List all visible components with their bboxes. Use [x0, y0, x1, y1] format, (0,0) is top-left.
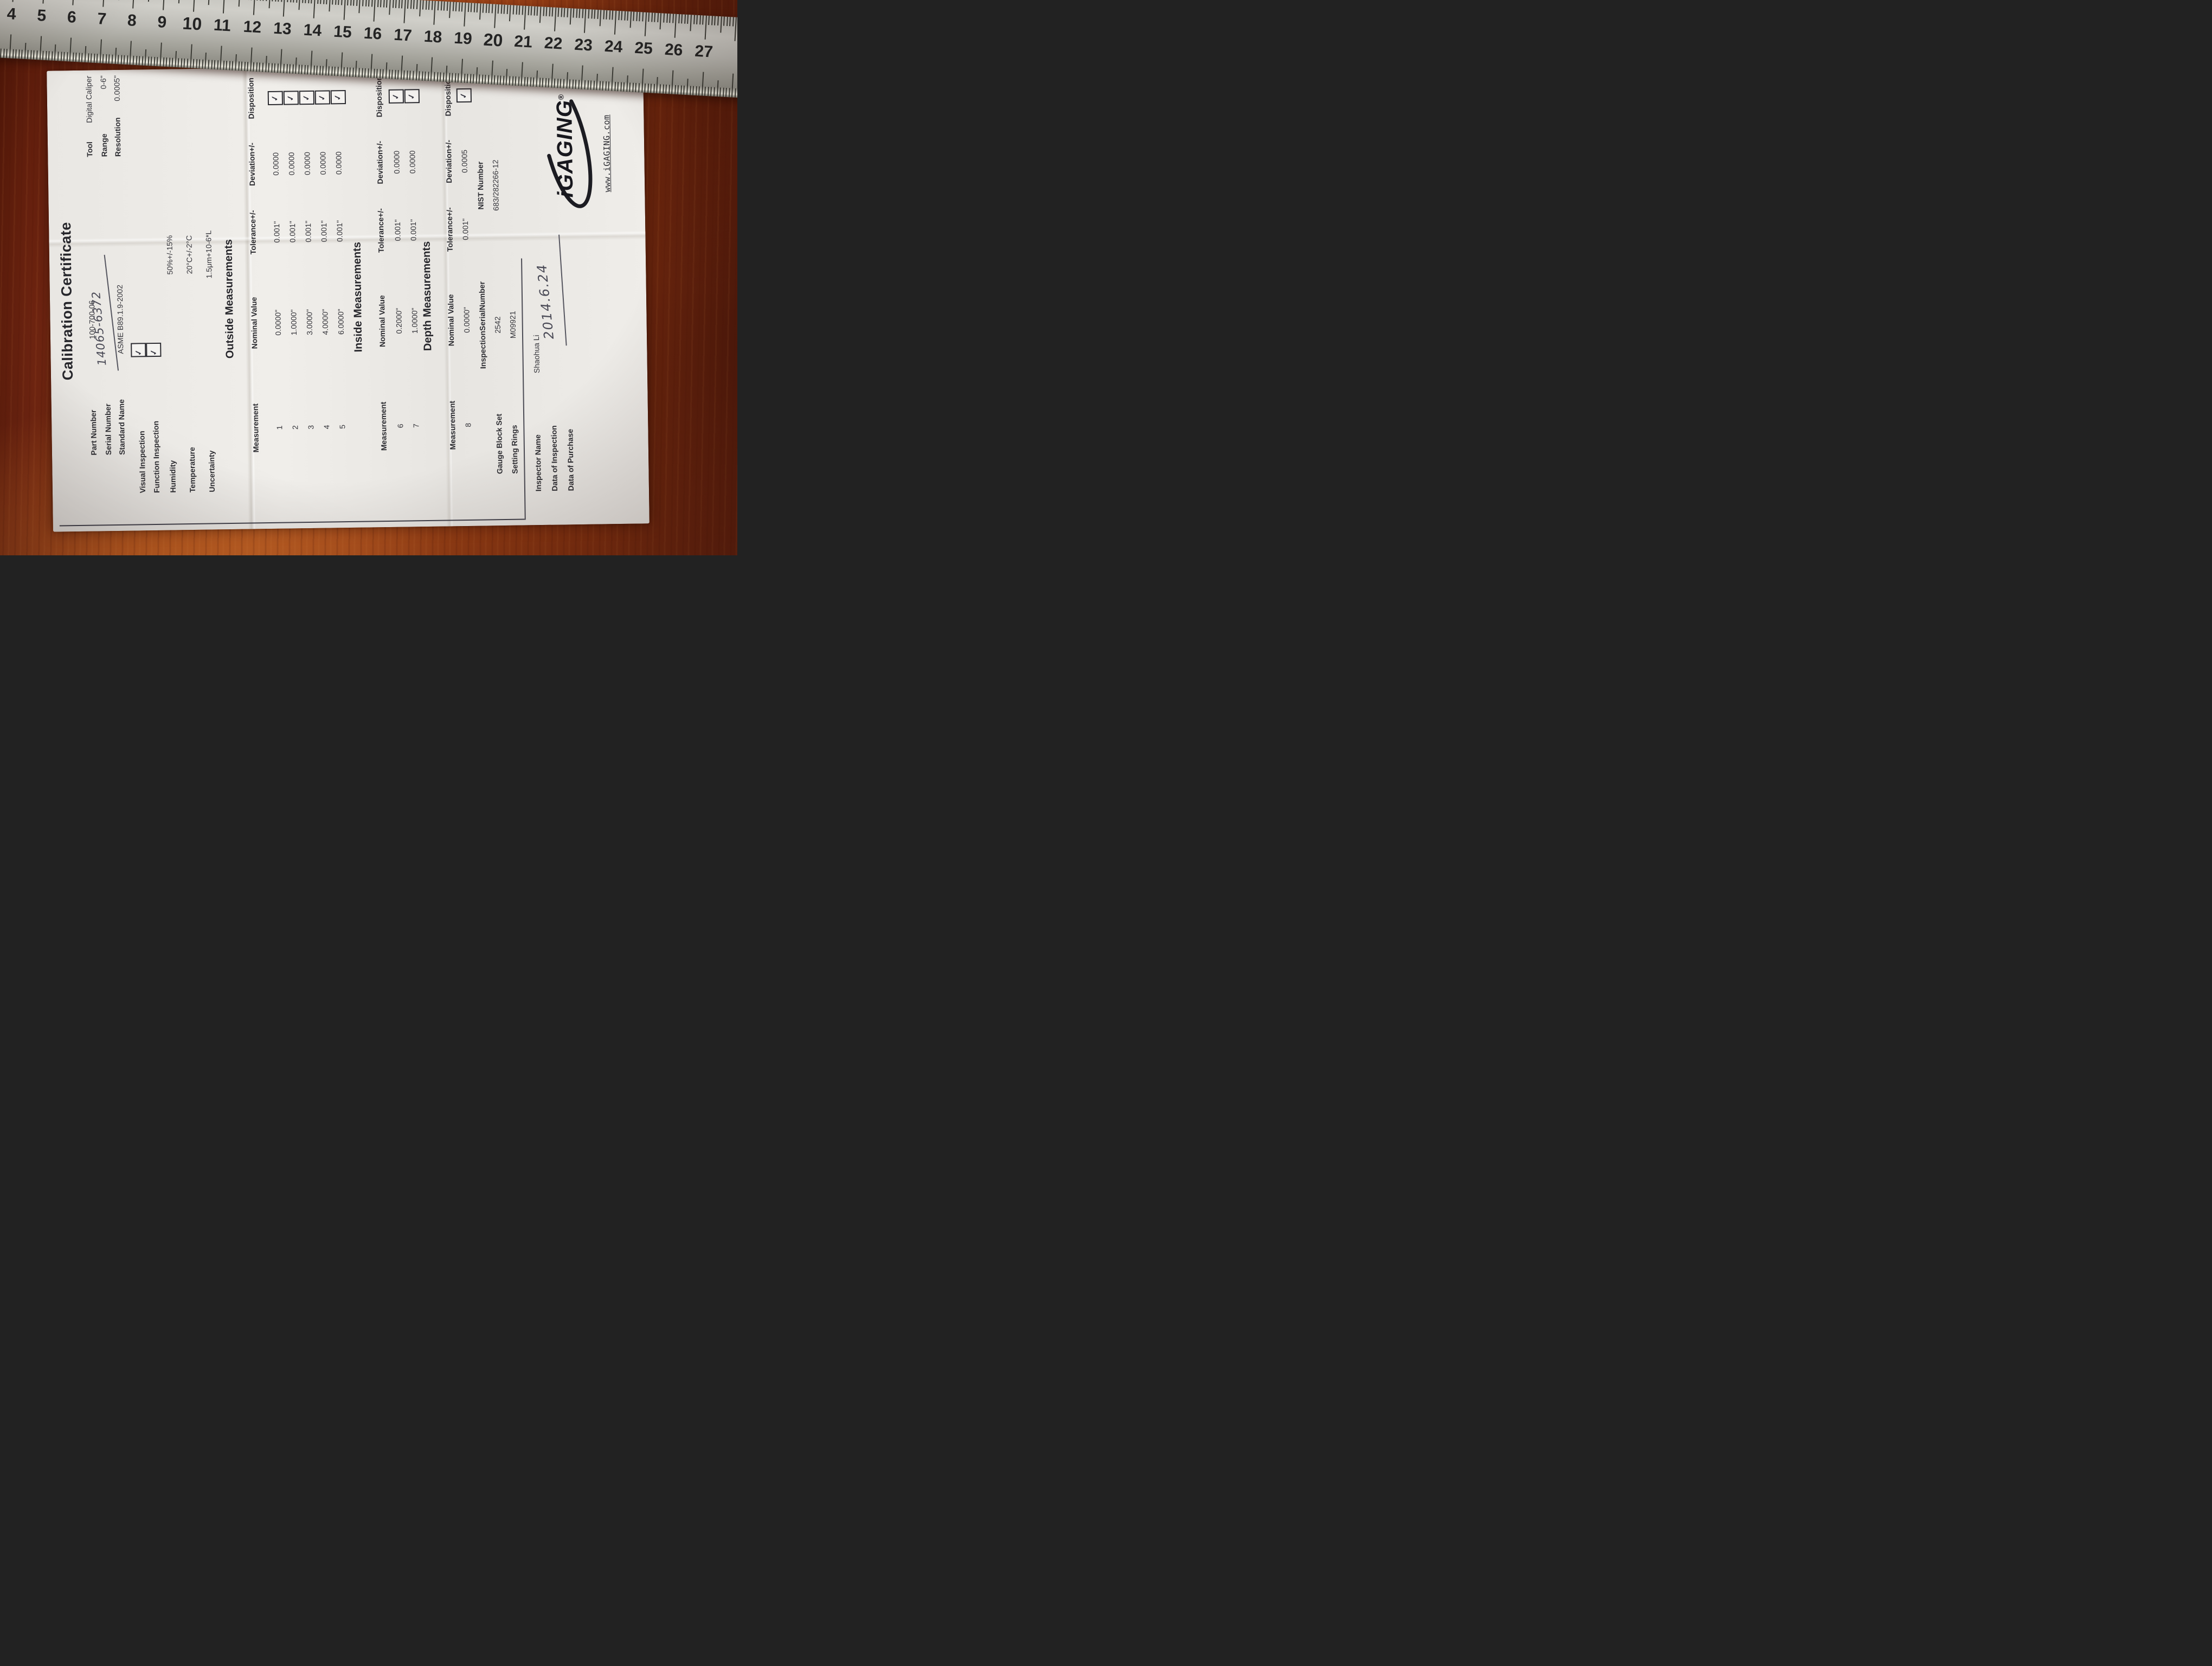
ruler-tick — [599, 81, 601, 90]
disposition-checkbox: ✓ — [404, 89, 420, 103]
ruler-tick — [569, 79, 571, 88]
ruler-tick — [488, 75, 490, 84]
registered-trademark-icon: ® — [556, 94, 565, 100]
ruler-tick — [488, 4, 490, 13]
ruler-tick — [503, 76, 504, 85]
ruler-tick — [543, 7, 544, 16]
ruler-tick — [346, 67, 348, 76]
ruler-tick — [704, 16, 706, 40]
part-number-label: Part Number — [89, 409, 98, 455]
ruler-tick — [263, 0, 265, 1]
ruler-tick — [710, 87, 712, 96]
ruler-tick — [419, 71, 420, 80]
ruler-tick — [719, 87, 721, 97]
ruler-tick — [112, 55, 113, 64]
ruler-tick — [660, 13, 662, 29]
ruler-tick — [335, 0, 337, 5]
ruler-tick — [653, 84, 655, 93]
ruler-tick — [79, 53, 80, 62]
ruler-number: 11 — [213, 16, 232, 36]
deviation-cell: 0.0000 — [270, 131, 285, 197]
ruler-tick — [473, 74, 474, 84]
ruler-tick — [293, 0, 294, 3]
ruler-tick — [521, 62, 523, 86]
ruler-tick — [686, 79, 689, 95]
ruler-tick — [403, 71, 405, 80]
ruler-tick — [438, 1, 439, 10]
ruler-tick — [244, 62, 246, 71]
ruler-tick — [614, 82, 616, 91]
check-icon: ✓ — [132, 343, 144, 357]
ruler-tick — [24, 43, 27, 59]
photo-scene: Calibration Certificate Part Number 100-… — [0, 0, 737, 555]
ruler-number: 7 — [97, 10, 107, 29]
ruler-tick — [374, 69, 375, 78]
deviation-cell: 0.0000 — [286, 131, 300, 197]
ruler-tick — [205, 53, 207, 69]
ruler-tick — [81, 53, 83, 62]
nominal-header: Nominal Value — [445, 265, 457, 376]
ruler-tick — [594, 10, 595, 19]
ruler-tick — [329, 0, 331, 11]
ruler-tick — [464, 74, 465, 83]
ruler-tick — [572, 80, 574, 89]
ruler-tick — [440, 72, 441, 81]
ruler-tick — [723, 17, 725, 26]
ruler-tick — [304, 65, 306, 74]
page-border-line — [60, 518, 525, 526]
ruler-tick — [699, 15, 701, 24]
ruler-tick — [606, 10, 608, 20]
ruler-tick — [296, 0, 298, 3]
check-icon: ✓ — [406, 89, 419, 103]
ruler-tick — [337, 67, 339, 76]
ruler-tick — [458, 73, 459, 82]
ruler-tick — [522, 5, 523, 15]
ruler-tick — [693, 15, 695, 24]
ruler-tick — [277, 63, 279, 73]
ruler-tick — [358, 68, 360, 77]
ruler-tick — [407, 71, 408, 80]
ruler-tick — [317, 0, 319, 4]
ruler-tick — [663, 85, 664, 94]
ruler-tick — [69, 37, 72, 61]
ruler-tick — [657, 77, 659, 93]
ruler-tick — [114, 48, 117, 64]
ruler-tick — [723, 88, 724, 97]
ruler-tick — [531, 6, 532, 15]
ruler-tick — [614, 11, 616, 35]
ruler-tick — [717, 80, 719, 97]
ruler-tick — [214, 60, 215, 69]
ruler-tick — [549, 7, 550, 16]
ruler-tick — [426, 1, 427, 10]
ruler-tick — [272, 0, 273, 2]
ruler-tick — [73, 0, 75, 5]
ruler-tick — [238, 61, 240, 71]
ruler-tick — [75, 53, 77, 62]
ruler-tick — [311, 0, 313, 3]
ruler-tick — [635, 83, 637, 92]
ruler-tick — [663, 14, 665, 23]
ruler-tick — [190, 44, 192, 68]
ruler-tick — [563, 79, 564, 88]
ruler-tick — [530, 77, 531, 86]
ruler-tick — [42, 0, 44, 4]
logo-wordmark: iGAGING — [552, 100, 578, 198]
ruler-tick — [554, 79, 556, 88]
ruler-tick — [259, 62, 261, 72]
ruler-number: 12 — [243, 18, 262, 37]
ruler-tick — [39, 36, 41, 60]
ruler-tick — [593, 81, 595, 90]
ruler-tick — [455, 73, 456, 82]
ruler-tick — [726, 17, 728, 26]
ruler-tick — [361, 68, 363, 78]
ruler-tick — [657, 13, 659, 22]
tolerance-header: Tolerance+/- — [443, 194, 455, 264]
ruler-number: 8 — [127, 11, 137, 30]
ruler-tick — [509, 76, 510, 85]
disposition-checkbox: ✓ — [268, 91, 283, 105]
ruler-tick — [566, 72, 568, 88]
ruler-tick — [401, 0, 403, 8]
ruler-tick — [533, 78, 535, 87]
ruler-tick — [698, 86, 700, 95]
ruler-tick — [407, 0, 409, 9]
date-of-inspection-underline — [558, 235, 567, 346]
ruler-tick — [33, 50, 35, 60]
ruler-number: 15 — [333, 23, 352, 42]
ruler-tick — [642, 12, 644, 21]
nominal-header: Nominal Value — [248, 267, 260, 379]
ruler-tick — [421, 72, 423, 81]
ruler-tick — [343, 67, 345, 76]
measurement-cell: 3 — [305, 377, 320, 477]
ruler-tick — [518, 76, 519, 86]
ruler-tick — [18, 49, 20, 59]
ruler-tick — [223, 61, 224, 70]
disposition-cell: ✓ — [285, 65, 299, 131]
ruler-tick — [545, 78, 546, 87]
disposition-checkbox: ✓ — [284, 91, 299, 105]
ruler-tick — [620, 82, 622, 91]
tolerance-header: Tolerance+/- — [375, 195, 387, 265]
ruler-tick — [27, 50, 29, 59]
ruler-tick — [443, 2, 445, 11]
tolerance-cell: 0.001" — [286, 196, 301, 267]
ruler-tick — [250, 47, 252, 71]
uncertainty-label: Uncertainty — [207, 450, 216, 492]
ruler-tick — [370, 54, 372, 78]
range-value: 0-6" — [99, 75, 108, 151]
ruler-tick — [120, 55, 122, 65]
ruler-tick — [611, 67, 613, 91]
ruler-tick — [575, 80, 577, 89]
ruler-tick — [683, 86, 685, 95]
ruler-tick — [650, 84, 652, 93]
ruler-tick — [229, 61, 230, 70]
visual-inspection-checkbox: ✓ — [131, 343, 146, 357]
ruler-tick — [467, 3, 469, 12]
ruler-tick — [482, 75, 484, 84]
ruler-tick — [492, 4, 493, 13]
ruler-tick — [651, 12, 653, 22]
ruler-tick — [475, 67, 478, 84]
ruler-tick — [533, 7, 535, 16]
ruler-tick — [629, 11, 632, 28]
ruler-tick — [85, 46, 87, 62]
ruler-tick — [551, 64, 553, 88]
logo-text: iGAGING® — [552, 93, 578, 197]
ruler-tick — [471, 3, 472, 12]
ruler-tick — [374, 0, 376, 22]
ruler-tick — [340, 53, 343, 76]
ruler-tick — [323, 0, 325, 4]
ruler-tick — [731, 74, 734, 98]
ruler-tick — [377, 0, 379, 7]
ruler-tick — [425, 72, 426, 81]
ruler-tick — [548, 78, 550, 87]
ruler-tick — [539, 78, 541, 87]
ruler-tick — [479, 3, 481, 20]
standard-name-value: ASME B89.1.9-2002 — [115, 265, 125, 374]
ruler-tick — [332, 0, 333, 5]
ruler-tick — [453, 2, 454, 11]
measurement-cell: 4 — [320, 377, 336, 477]
ruler-tick — [208, 60, 209, 69]
ruler-tick — [671, 71, 673, 94]
ruler-tick — [290, 0, 292, 2]
ruler-tick — [217, 60, 218, 69]
temperature-label: Temperature — [188, 447, 197, 492]
ruler-tick — [268, 63, 269, 72]
ruler-number: 4 — [7, 5, 17, 24]
visual-inspection-label: Visual Inspection — [137, 431, 147, 493]
ruler-tick — [513, 5, 515, 15]
ruler-tick — [567, 8, 568, 17]
ruler-tick — [159, 42, 162, 66]
ruler-tick — [603, 10, 605, 20]
ruler-tick — [301, 65, 303, 74]
ruler-tick — [494, 75, 496, 85]
ruler-tick — [163, 57, 164, 67]
ruler-tick — [175, 51, 177, 67]
ruler-tick — [275, 0, 276, 2]
ruler-tick — [220, 46, 222, 69]
ruler-tick — [436, 72, 438, 81]
ruler-tick — [133, 0, 135, 9]
measurement-cell: 2 — [289, 378, 304, 477]
ruler-tick — [494, 4, 496, 28]
outside-measurements-heading: Outside Measurements — [220, 68, 239, 529]
ruler-tick — [690, 86, 691, 95]
ruler-tick — [681, 14, 683, 23]
date-of-purchase-label: Data of Purchase — [565, 429, 575, 491]
ruler-tick — [461, 59, 463, 83]
ruler-tick — [536, 71, 538, 87]
ruler-tick — [702, 72, 704, 96]
inspection-serial-number-header: InspectionSerialNumber — [477, 254, 488, 395]
ruler-tick — [461, 2, 463, 11]
ruler-tick — [57, 52, 59, 61]
ruler-tick — [573, 9, 575, 18]
tolerance-header: Tolerance+/- — [247, 197, 259, 267]
ruler-tick — [235, 54, 237, 71]
ruler-tick — [654, 13, 655, 22]
ruler-tick — [473, 3, 475, 12]
table-row: 5 6.0000" 0.001" 0.0000 ✓ — [332, 64, 351, 476]
ruler-tick — [687, 15, 689, 24]
ruler-tick — [711, 16, 713, 25]
ruler-tick — [678, 14, 680, 23]
ruler-tick — [596, 74, 598, 90]
ruler-tick — [21, 50, 23, 59]
ruler-tick — [153, 57, 155, 66]
ruler-tick — [576, 9, 577, 18]
ruler-tick — [126, 55, 128, 65]
ruler-tick — [410, 0, 412, 9]
ruler-tick — [12, 0, 14, 2]
ruler-tick — [554, 8, 556, 31]
ruler-tick — [485, 75, 486, 84]
table-row: 8 0.0000" 0.001" 0.0005 ✓ — [458, 62, 477, 475]
ruler-tick — [506, 5, 508, 14]
ruler-tick — [376, 69, 378, 78]
ruler-tick — [497, 75, 498, 85]
gauge-block-set-serial: 2542 — [492, 254, 503, 395]
ruler-tick — [172, 58, 173, 67]
ruler-tick — [717, 16, 719, 25]
ruler-tick — [223, 0, 225, 14]
ruler-tick — [434, 72, 435, 81]
ruler-tick — [93, 54, 95, 63]
ruler-tick — [432, 1, 433, 10]
ruler-number: 9 — [157, 13, 168, 32]
ruler-tick — [178, 0, 181, 3]
ruler-number: 22 — [544, 34, 563, 54]
ruler-tick — [624, 11, 626, 21]
ruler-tick — [674, 85, 676, 94]
ruler-tick — [142, 56, 143, 66]
ruler-tick — [302, 0, 304, 3]
ruler-tick — [355, 61, 357, 77]
ruler-tick — [395, 0, 397, 8]
ruler-tick — [322, 66, 324, 75]
ruler-number: 27 — [695, 42, 713, 62]
ruler-tick — [52, 52, 53, 61]
ruler-tick — [647, 84, 649, 93]
humidity-label: Humidity — [168, 460, 177, 493]
ruler-tick — [401, 56, 403, 80]
ruler-tick — [257, 0, 259, 1]
ruler-tick — [669, 14, 671, 23]
ruler-tick — [42, 51, 44, 60]
ruler-tick — [403, 0, 406, 23]
ruler-tick — [295, 57, 297, 74]
ruler-tick — [391, 70, 393, 79]
disposition-header: Disposition — [245, 65, 257, 131]
ruler-tick — [307, 65, 309, 74]
ruler-tick — [448, 73, 450, 82]
ruler-tick — [283, 0, 285, 17]
ruler-tick — [280, 49, 282, 73]
ruler-tick — [434, 1, 436, 25]
ruler-tick — [415, 64, 417, 80]
ruler-number: 10 — [182, 14, 203, 35]
ruler-tick — [334, 67, 336, 76]
ruler-tick — [130, 41, 132, 65]
ruler-tick — [483, 4, 484, 13]
ruler-tick — [486, 4, 487, 13]
ruler-tick — [459, 2, 460, 11]
ruler-tick — [524, 77, 525, 86]
ruler-tick — [328, 66, 330, 75]
ruler-tick — [524, 6, 526, 30]
ruler-tick — [729, 17, 731, 26]
ruler-tick — [139, 56, 140, 65]
website-url: www.iGAGING.com — [601, 114, 612, 192]
ruler-tick — [569, 8, 571, 24]
section-divider-line — [521, 259, 526, 520]
tolerance-cell: 0.001" — [391, 195, 406, 266]
ruler-tick — [362, 0, 364, 7]
ruler-tick — [226, 61, 228, 70]
ruler-tick — [364, 68, 366, 78]
ruler-number: 24 — [604, 37, 623, 57]
ruler-tick — [579, 9, 581, 18]
ruler-number: 6 — [67, 8, 77, 27]
temperature-value: 20°C+/-2°C — [184, 207, 194, 302]
ruler-tick — [609, 10, 610, 20]
nominal-cell: 4.0000" — [319, 266, 334, 378]
ruler-tick — [202, 60, 203, 69]
ruler-tick — [12, 49, 14, 59]
ruler-tick — [506, 69, 508, 85]
ruler-tick — [602, 81, 604, 91]
ruler-tick — [729, 88, 730, 97]
ruler-tick — [578, 80, 580, 89]
ruler-tick — [527, 77, 529, 86]
ruler-tick — [283, 64, 285, 73]
ruler-tick — [623, 82, 625, 92]
ruler-tick — [633, 12, 635, 21]
ruler-tick — [720, 16, 722, 33]
ruler-tick — [289, 64, 291, 73]
tolerance-cell: 0.001" — [318, 196, 332, 267]
ruler-tick — [500, 75, 501, 85]
nominal-cell: 1.0000" — [287, 267, 303, 379]
ruler-tick — [239, 0, 241, 7]
measurement-cell: 5 — [336, 377, 351, 477]
ruler-tick — [605, 81, 607, 91]
ruler-tick — [612, 10, 614, 20]
tolerance-cell: 0.001" — [302, 196, 317, 267]
ruler-tick — [380, 0, 382, 7]
ruler-tick — [87, 53, 89, 62]
ruler-tick — [313, 66, 315, 75]
measurement-header: Measurement — [446, 376, 459, 475]
ruler-tick — [504, 5, 505, 14]
ruler-tick — [157, 57, 158, 66]
date-of-inspection-handwritten-value: 2014.6.24 — [534, 263, 557, 340]
ruler-tick — [262, 63, 263, 72]
ruler-tick — [542, 78, 544, 87]
ruler-tick — [365, 0, 367, 7]
tolerance-cell: 0.001" — [333, 196, 348, 266]
ruler-tick — [452, 73, 453, 82]
disposition-checkbox: ✓ — [389, 89, 404, 103]
